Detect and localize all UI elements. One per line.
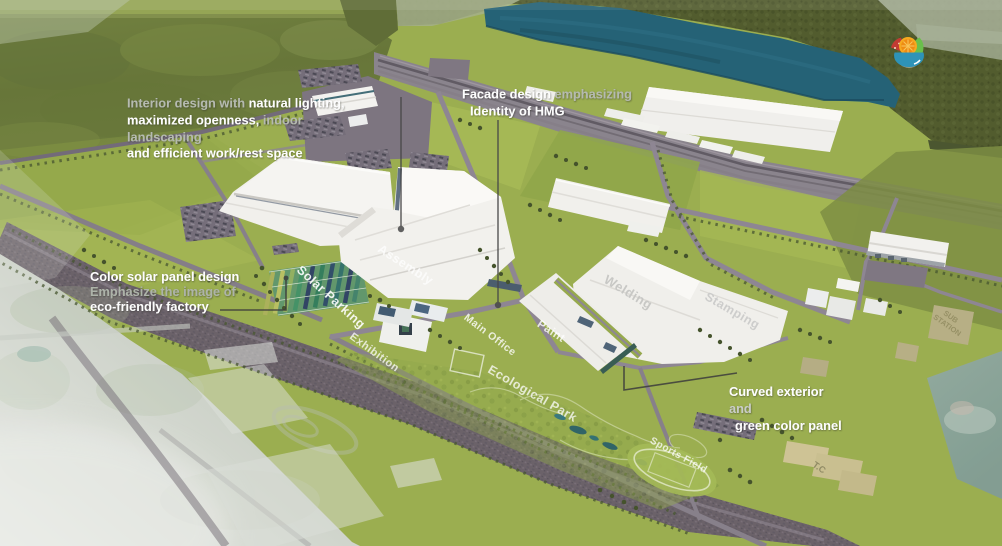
svg-text:eco-friendly factory: eco-friendly factory — [90, 299, 210, 314]
svg-text:maximized openness, indoor: maximized openness, indoor — [127, 113, 303, 128]
svg-text:Color solar panel design: Color solar panel design — [90, 269, 240, 284]
svg-text:Facade design emphasizing: Facade design emphasizing — [462, 87, 632, 102]
svg-text:and efficient work/rest space: and efficient work/rest space — [127, 146, 303, 161]
svg-text:landscaping: landscaping — [127, 130, 202, 145]
svg-text:green color panel: green color panel — [735, 418, 842, 433]
svg-text:Identity of HMG: Identity of HMG — [470, 104, 565, 119]
svg-text:and: and — [729, 401, 752, 416]
svg-text:Interior design with natural l: Interior design with natural lighting, — [127, 96, 345, 111]
svg-text:Curved exterior: Curved exterior — [729, 384, 824, 399]
svg-text:Emphasize the image of: Emphasize the image of — [90, 284, 237, 299]
